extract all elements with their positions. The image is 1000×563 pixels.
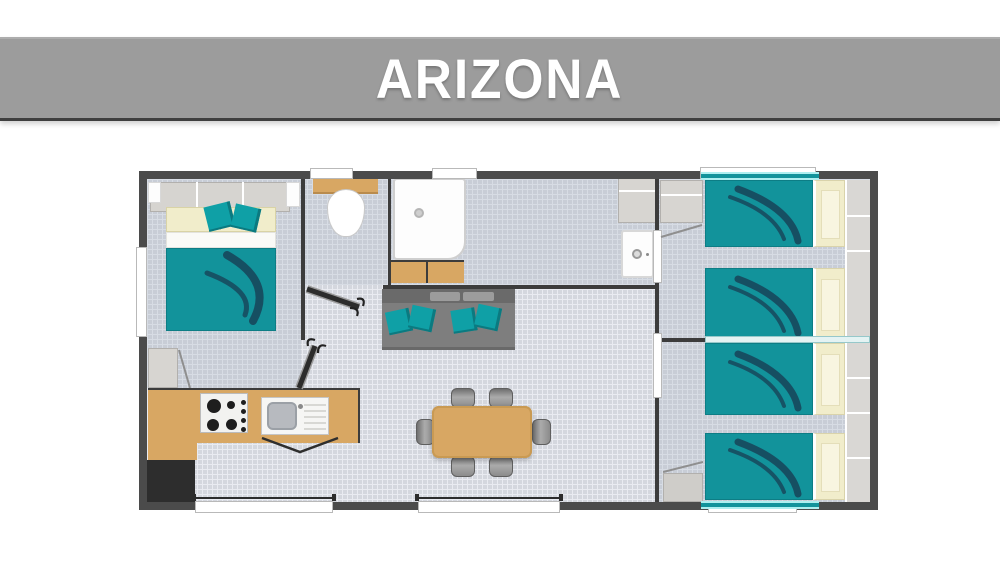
corridor-cabinet	[663, 473, 703, 502]
single-bed-pillow	[813, 433, 845, 500]
bedroom-wardrobe-column	[845, 343, 870, 502]
nightstand	[286, 182, 300, 207]
window-rail	[418, 497, 560, 499]
window-wc	[310, 168, 353, 179]
dining-chair	[489, 456, 513, 477]
sofa-cushion	[450, 307, 477, 333]
hob-knob	[241, 400, 246, 405]
burner	[207, 399, 221, 413]
wall-between-bedrooms	[659, 338, 707, 342]
window-rail	[195, 497, 333, 499]
pillow	[821, 190, 840, 239]
sofa	[382, 289, 515, 350]
burner	[207, 419, 219, 431]
bed-headboard-bar	[701, 172, 819, 180]
bed-swoosh-icon	[706, 344, 812, 414]
hob	[200, 393, 248, 433]
wardrobe-shelf-line	[661, 194, 702, 196]
floor-plan	[139, 171, 878, 510]
sofa-cushion	[408, 305, 436, 332]
duvet-swoosh-icon	[167, 249, 275, 330]
wall-left	[139, 171, 147, 510]
dining-chair	[489, 388, 513, 408]
dining-chair	[532, 419, 551, 445]
fridge	[147, 460, 195, 502]
cabinet-open-line	[663, 459, 703, 473]
rail-post	[192, 494, 196, 501]
bedroom-wardrobe-column	[845, 180, 870, 338]
sink-bowl	[267, 402, 297, 430]
bedroom-door-icon	[291, 336, 336, 392]
wall-bath-living	[383, 285, 659, 289]
bed-swoosh-icon	[706, 269, 812, 339]
pillow	[821, 354, 840, 406]
dining-chair	[451, 456, 475, 477]
wall-right	[870, 171, 878, 510]
basin-faucet-icon	[646, 253, 649, 256]
double-bed-duvet	[166, 248, 276, 331]
kitchen-counter-leg	[148, 443, 197, 460]
window-shower	[432, 168, 477, 179]
rail-post	[559, 494, 563, 501]
window-left	[136, 247, 147, 337]
hob-knob	[241, 418, 246, 423]
single-bed-mattress	[705, 433, 813, 500]
sofa-lumbar-pad	[430, 292, 460, 301]
bed-headboard-bar	[701, 501, 819, 509]
kitchen-sink	[261, 397, 329, 435]
window-bottom-2	[418, 501, 560, 513]
entry-wardrobe	[618, 173, 657, 223]
sofa-lumbar-pad	[463, 292, 494, 301]
title-banner: ARIZONA	[0, 37, 1000, 121]
single-bed-pillow	[813, 343, 845, 415]
cabinet-divider	[426, 262, 428, 283]
wardrobe-division	[845, 412, 870, 414]
sink-drainer	[304, 404, 326, 430]
wardrobe-open-line	[177, 348, 193, 390]
single-bed-mattress	[705, 180, 813, 247]
dining-table	[432, 406, 532, 458]
corridor-wardrobe	[660, 180, 703, 223]
single-bed-pillow	[813, 180, 845, 247]
pillow	[821, 279, 840, 331]
burner	[227, 401, 235, 409]
rail-post	[415, 494, 419, 501]
cabinet-opening-lines	[259, 433, 344, 457]
rail-post	[332, 494, 336, 501]
hob-knob	[241, 427, 246, 432]
wardrobe-division	[845, 215, 870, 217]
bed-swoosh-icon	[706, 434, 812, 499]
wardrobe-open-line	[660, 223, 703, 239]
hob-knob	[241, 409, 246, 414]
window-bottom-1	[195, 501, 333, 513]
shower-tray	[393, 178, 466, 260]
wall-wc-shower	[388, 179, 391, 288]
dining-chair	[451, 388, 475, 408]
single-bed-mattress	[705, 268, 813, 340]
burner	[226, 419, 237, 430]
wardrobe-division	[845, 250, 870, 252]
bed-junction-bar	[705, 336, 870, 343]
nightstand	[148, 182, 161, 203]
double-bed-sheet-fold	[166, 232, 276, 248]
bedroom-wardrobe	[148, 348, 178, 388]
single-bed-mattress	[705, 343, 813, 415]
bedroom3-door	[653, 333, 662, 398]
pillow	[821, 443, 840, 492]
page-title: ARIZONA	[376, 46, 624, 111]
wardrobe-shelf-line	[619, 190, 656, 192]
shower-drain-icon	[414, 208, 424, 218]
sofa-cushion	[474, 304, 502, 331]
wardrobe-division	[845, 377, 870, 379]
wardrobe-division	[845, 457, 870, 459]
basin-drain-icon	[632, 249, 642, 259]
sink-faucet-icon	[298, 404, 303, 409]
bed-swoosh-icon	[706, 181, 812, 246]
page: ARIZONA	[0, 0, 1000, 563]
wc-door-icon	[301, 283, 376, 318]
single-bed-pillow	[813, 268, 845, 340]
